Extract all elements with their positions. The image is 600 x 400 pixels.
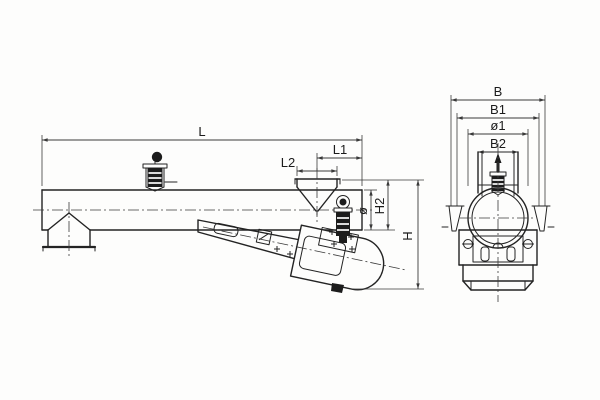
dim-label-H: H xyxy=(400,231,415,240)
suspension-spring-rear xyxy=(334,196,352,244)
discharge-outlet xyxy=(43,202,95,258)
dimension-L: L xyxy=(42,124,362,186)
arm-plate-tag xyxy=(256,229,271,244)
hanger-bracket-right xyxy=(532,206,554,231)
dim-label-B: B xyxy=(494,84,503,99)
dim-label-L2: L2 xyxy=(281,155,295,170)
suspension-spring-front xyxy=(143,152,177,191)
inlet-hopper xyxy=(295,168,340,222)
side-view: L L1 L2 ø H2 xyxy=(33,124,424,295)
end-view: B B1 ø1 B2 xyxy=(442,84,554,302)
vibration-motor xyxy=(203,225,406,294)
technical-drawing: L L1 L2 ø H2 xyxy=(0,0,600,400)
dim-label-dia: ø xyxy=(355,207,370,215)
tube-cross-section xyxy=(460,143,536,302)
dimension-L1: L1 xyxy=(317,142,362,171)
drawing-canvas: L L1 L2 ø H2 xyxy=(0,0,600,400)
dim-label-dia1: ø1 xyxy=(490,118,505,133)
hanger-bracket-left xyxy=(442,206,464,231)
feeder-tube xyxy=(33,190,374,230)
dim-label-H2: H2 xyxy=(372,198,387,215)
spring-eyelet xyxy=(152,152,162,162)
dim-label-L: L xyxy=(198,124,205,139)
dimension-H2: H2 xyxy=(342,180,424,230)
dim-label-L1: L1 xyxy=(333,142,347,157)
dim-label-B1: B1 xyxy=(490,102,506,117)
